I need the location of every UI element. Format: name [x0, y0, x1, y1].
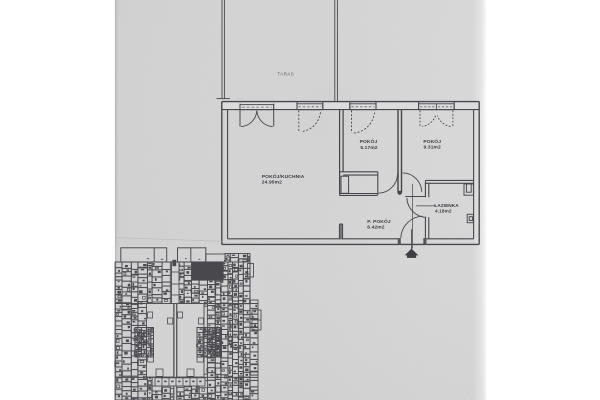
svg-text:6.42m2: 6.42m2: [367, 225, 384, 231]
svg-text:4.18m2: 4.18m2: [435, 208, 452, 213]
svg-text:ŁAZIENKA: ŁAZIENKA: [434, 203, 459, 208]
svg-text:24.95m2: 24.95m2: [262, 180, 282, 186]
svg-text:TARAS: TARAS: [277, 71, 294, 76]
svg-text:9.31m2: 9.31m2: [424, 144, 441, 150]
svg-text:5.17m2: 5.17m2: [360, 145, 377, 151]
